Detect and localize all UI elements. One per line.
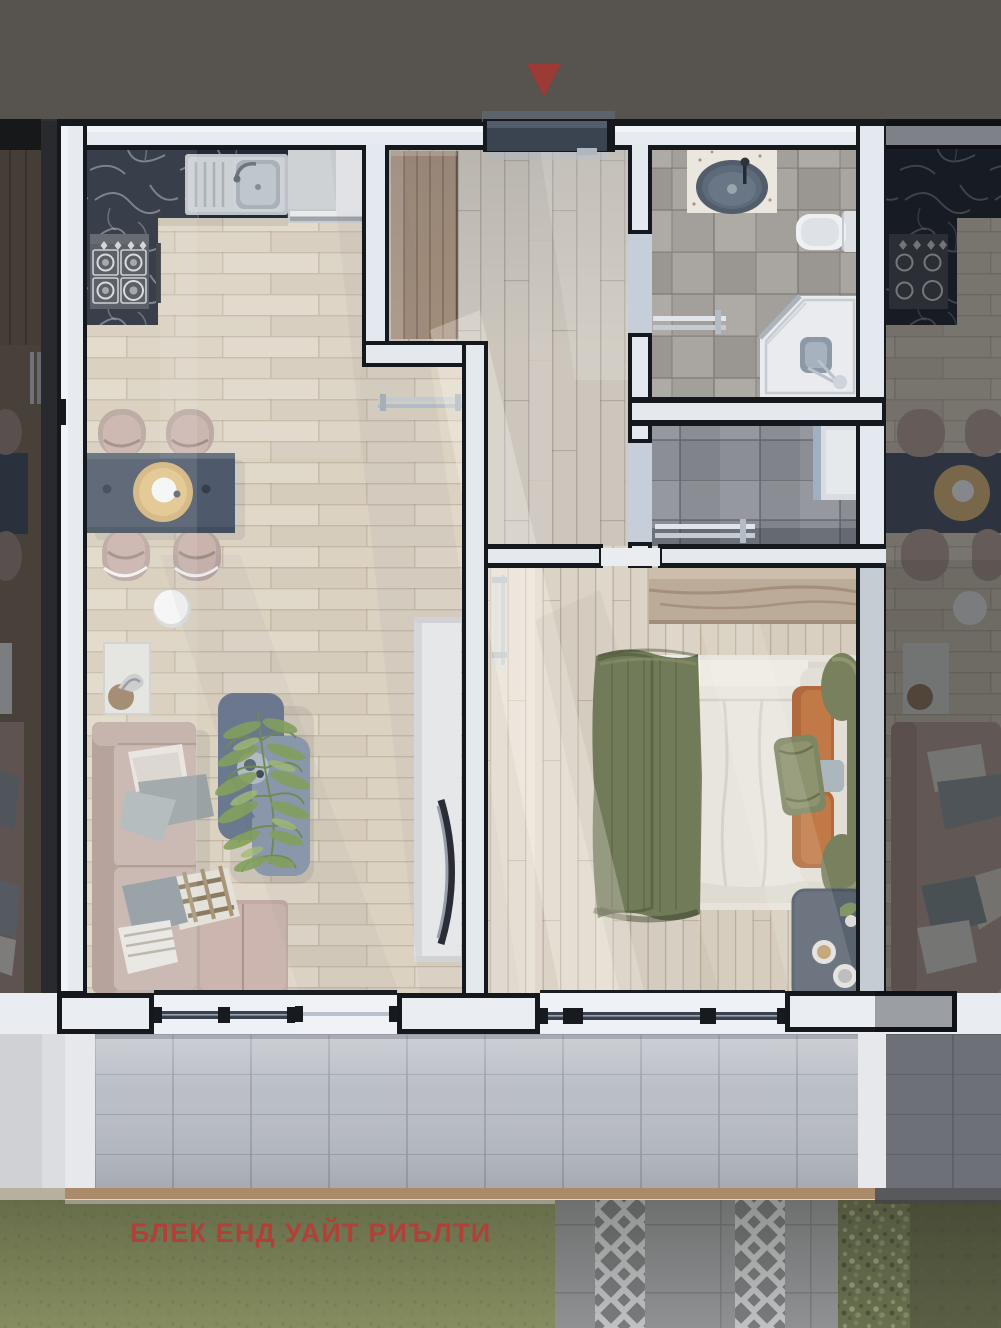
svg-text:БЛЕК ЕНД УАЙТ РИЪЛТИ: БЛЕК ЕНД УАЙТ РИЪЛТИ <box>130 1217 491 1248</box>
